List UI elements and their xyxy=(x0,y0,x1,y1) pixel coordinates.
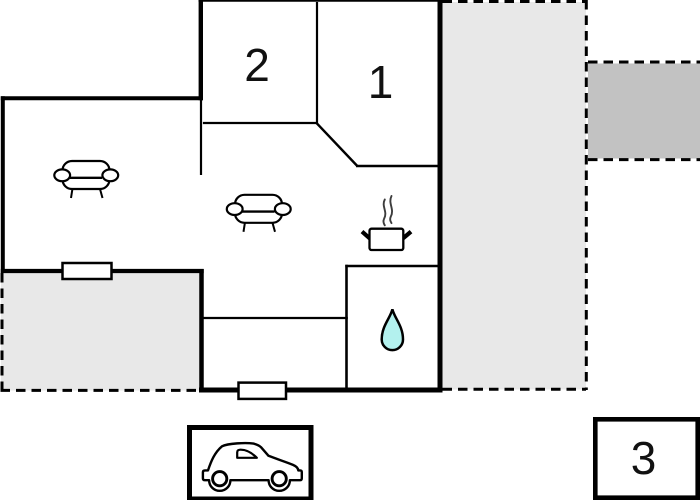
svg-text:3: 3 xyxy=(631,432,657,484)
svg-text:1: 1 xyxy=(368,56,394,108)
svg-text:2: 2 xyxy=(244,39,270,91)
